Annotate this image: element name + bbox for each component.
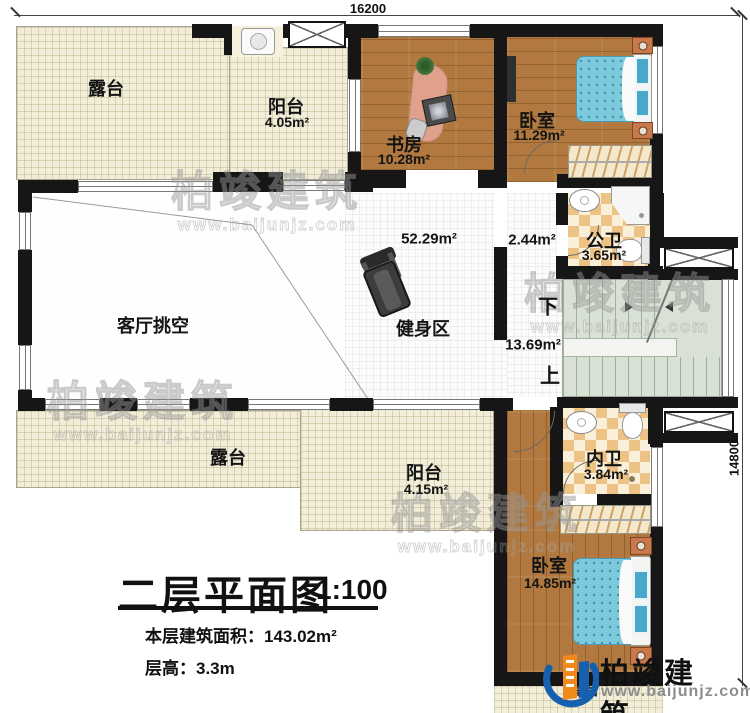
- toilet-tank: [641, 237, 650, 264]
- sink-drain: [580, 196, 589, 205]
- treadmill-belt: [372, 268, 402, 311]
- dimension-height: 14800: [727, 440, 742, 476]
- bed-sheet: [622, 57, 635, 121]
- washing-machine-drum: [250, 33, 267, 50]
- wall: [556, 193, 568, 225]
- pillow-icon: [633, 604, 649, 634]
- label-balcony-top-area: 4.05m²: [265, 114, 309, 130]
- wall: [348, 24, 361, 79]
- window: [19, 345, 31, 390]
- bay-window-bottom: [664, 411, 734, 433]
- wall: [361, 170, 406, 188]
- wardrobe-rod: [561, 519, 650, 521]
- wall: [650, 193, 664, 243]
- wall: [224, 24, 232, 55]
- sink-drain: [577, 418, 586, 427]
- label-terrace-bottom: 露台: [210, 444, 246, 470]
- wall: [330, 398, 373, 411]
- label-stairs-down: 下: [538, 291, 558, 320]
- label-bedroom-bottom-area: 14.85m²: [524, 575, 576, 591]
- sink-icon: [566, 411, 597, 434]
- nightstand-knob: [638, 41, 647, 50]
- plan-title: 二层平面图: [118, 563, 333, 621]
- window: [651, 46, 663, 134]
- wall: [656, 397, 738, 408]
- logo-brand: 柏竣建筑、: [600, 650, 750, 713]
- nightstand-icon: [630, 537, 652, 555]
- nightstand-knob: [638, 126, 647, 135]
- dimension-width: 16200: [350, 1, 386, 16]
- floor-plan-canvas: 柏竣建筑 www.baijunjz.com 柏竣建筑 www.baijunjz.…: [0, 0, 750, 713]
- plant-icon: [416, 57, 434, 75]
- bay-window-top: [664, 247, 734, 269]
- dimension-line-right: [742, 16, 743, 686]
- label-hallway-area: 2.44m²: [508, 232, 556, 249]
- nightstand-knob: [637, 542, 646, 551]
- label-living-void: 客厅挑空: [117, 312, 189, 338]
- wall: [18, 398, 45, 411]
- window: [651, 447, 663, 527]
- wall: [494, 247, 507, 340]
- wall: [494, 24, 507, 188]
- label-living-area: 52.29m²: [401, 231, 457, 248]
- bed-sheet: [619, 560, 632, 644]
- wall: [556, 266, 663, 279]
- nightstand-icon: [632, 122, 653, 139]
- wall: [190, 398, 248, 411]
- wall: [213, 172, 283, 192]
- tv-icon: [507, 56, 516, 102]
- plan-scale: 1:100: [316, 574, 388, 606]
- plan-floor-height: 层高：3.3m: [145, 654, 235, 679]
- label-bath-public-area: 3.65m²: [582, 247, 626, 263]
- window: [349, 79, 361, 152]
- pillow-icon: [635, 89, 650, 117]
- wardrobe-icon: [560, 505, 651, 534]
- pillow-icon: [635, 57, 650, 85]
- skylight-window: [288, 21, 346, 48]
- title-underline: [118, 606, 378, 610]
- wardrobe-rod: [569, 161, 651, 163]
- plan-floor-area: 本层建筑面积：143.02m²: [145, 622, 337, 647]
- logo-url: www.baijunjz.com: [601, 683, 750, 701]
- toilet-icon: [622, 412, 643, 439]
- window: [373, 399, 480, 410]
- wardrobe-icon: [568, 145, 652, 178]
- sink-icon: [569, 189, 600, 212]
- washing-machine-icon: [241, 28, 275, 55]
- label-terrace-top: 露台: [88, 75, 124, 101]
- wall: [557, 397, 663, 408]
- window: [19, 212, 31, 250]
- window: [78, 181, 213, 192]
- wall: [650, 397, 663, 447]
- label-fitness: 健身区: [396, 315, 450, 341]
- label-stairs-area: 13.69m²: [505, 337, 561, 354]
- window: [45, 399, 100, 410]
- logo-icon: [543, 648, 599, 710]
- pillow-icon: [633, 570, 649, 600]
- window: [283, 180, 345, 191]
- shower-drain: [639, 213, 644, 218]
- wall: [478, 170, 507, 188]
- wall: [18, 250, 32, 345]
- label-bedroom-top-area: 11.29m²: [513, 127, 564, 143]
- label-balcony-bottom-area: 4.15m²: [404, 481, 448, 497]
- label-stairs-up: 上: [540, 360, 560, 389]
- window: [722, 279, 734, 397]
- label-bath-ensuite-area: 3.84m²: [584, 466, 628, 482]
- wall: [507, 24, 663, 37]
- window: [137, 399, 190, 410]
- wall: [18, 180, 32, 212]
- door-knob: [629, 476, 635, 482]
- nightstand-icon: [632, 37, 653, 54]
- monitor-screen: [429, 102, 449, 121]
- wall: [100, 398, 137, 411]
- label-study-area: 10.28m²: [378, 151, 430, 167]
- wall: [494, 398, 507, 686]
- window: [248, 399, 330, 410]
- window: [378, 25, 470, 37]
